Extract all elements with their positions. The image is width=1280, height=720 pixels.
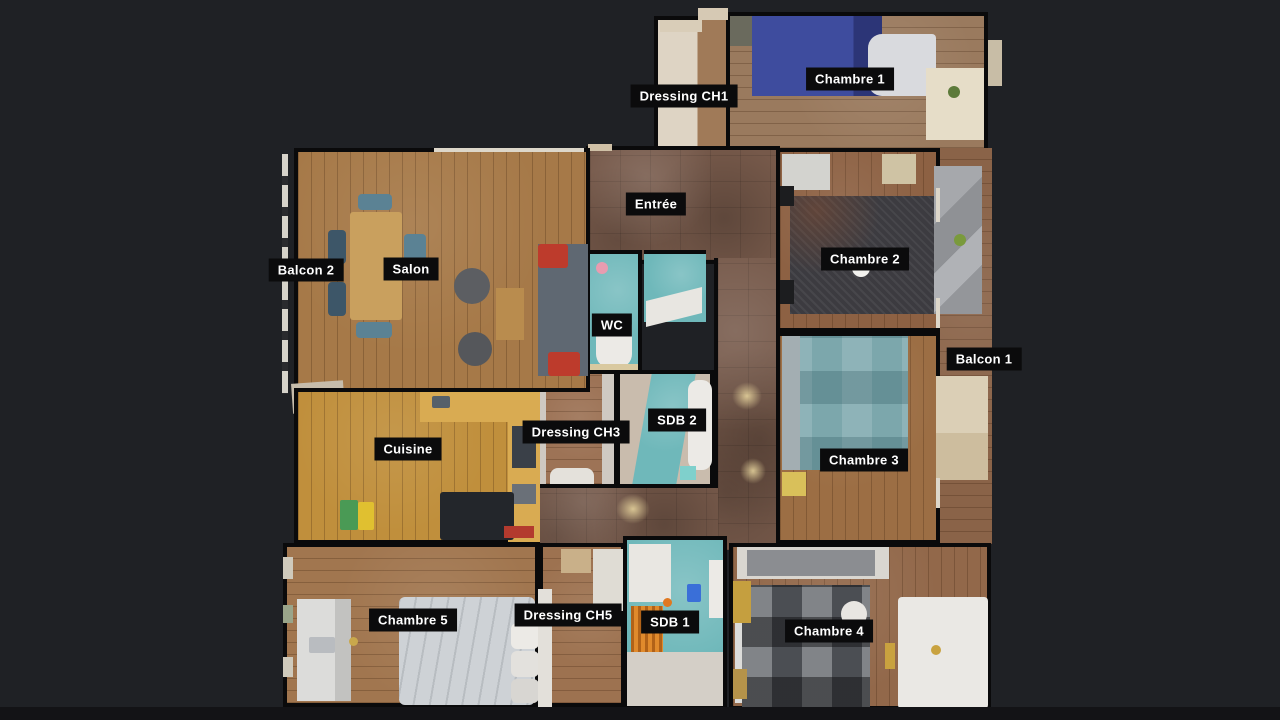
room-label-cuisine: Cuisine xyxy=(374,438,441,461)
chambre-4-desk xyxy=(898,597,988,709)
chambre-3-nightstand xyxy=(782,472,806,496)
chambre-4-bench xyxy=(747,550,875,576)
cuisine-bin-yellow xyxy=(358,502,374,530)
dressing-ch5-suitcase xyxy=(561,549,591,573)
cuisine-appliance xyxy=(512,484,536,504)
room-label-dressing-ch1: Dressing CH1 xyxy=(631,85,738,108)
salon-armchair xyxy=(454,268,490,304)
wall-fragment xyxy=(283,657,293,677)
room-label-chambre-3: Chambre 3 xyxy=(820,449,908,472)
sdb-1-vanity xyxy=(629,544,671,602)
room-label-chambre-5: Chambre 5 xyxy=(369,609,457,632)
sdb-1-floor-stone xyxy=(627,652,723,706)
cuisine-stove xyxy=(440,492,514,540)
chambre-1-desk xyxy=(926,68,984,140)
chambre-5-pillow xyxy=(511,651,539,677)
shower-vanity xyxy=(646,287,702,327)
chambre-5-pillow xyxy=(511,623,539,649)
dressing-ch1-shelf xyxy=(660,20,702,32)
room-label-entree: Entrée xyxy=(626,193,686,216)
floor-mark xyxy=(616,494,650,524)
room-cuisine xyxy=(294,388,540,544)
door-threshold xyxy=(588,144,612,151)
sdb-2-fixture xyxy=(680,466,696,480)
letterbox-bar xyxy=(0,707,1280,720)
chambre-2-closet xyxy=(782,154,830,190)
room-label-chambre-4: Chambre 4 xyxy=(785,620,873,643)
room-label-chambre-2: Chambre 2 xyxy=(821,248,909,271)
sdb-1-towel xyxy=(709,560,723,618)
wall-fragment xyxy=(698,8,728,20)
room-label-wc: WC xyxy=(592,314,632,337)
chambre-2-nightstand xyxy=(780,280,794,304)
chambre-3-pillows xyxy=(782,336,800,470)
dressing-ch3-item xyxy=(550,468,594,484)
room-label-balcon-2: Balcon 2 xyxy=(269,259,344,282)
salon-sofa-cushion xyxy=(548,352,580,376)
sdb-1-item-blue xyxy=(687,584,701,602)
floorplan-3d-view[interactable]: Dressing CH1 Chambre 1 Entrée Balcon 2 S… xyxy=(0,0,1280,720)
room-label-sdb-2: SDB 2 xyxy=(648,409,706,432)
window-segment xyxy=(936,298,940,328)
wall-fragment xyxy=(988,40,1002,86)
room-chambre-2 xyxy=(776,148,940,332)
chambre-4-candlestick xyxy=(931,645,941,655)
sdb-1-item-orange xyxy=(663,598,672,607)
balcon-1-plant xyxy=(954,234,966,246)
salon-chair xyxy=(356,322,392,338)
dressing-ch5-wardrobe xyxy=(593,549,623,611)
chambre-5-pillow xyxy=(511,679,539,703)
room-balcon-1 xyxy=(936,148,992,544)
cuisine-sink xyxy=(432,396,450,408)
cuisine-bin-green xyxy=(340,500,358,530)
chambre-5-laptop xyxy=(309,637,335,653)
wall-fragment xyxy=(283,557,293,579)
chambre-2-nightstand xyxy=(780,186,794,206)
floor-mark xyxy=(732,382,762,410)
wall-fragment xyxy=(283,605,293,623)
cuisine-item-red xyxy=(504,526,534,538)
chambre-2-wardrobe xyxy=(882,154,916,184)
room-label-sdb-1: SDB 1 xyxy=(641,611,699,634)
chambre-1-plant xyxy=(948,86,960,98)
room-label-salon: Salon xyxy=(384,258,439,281)
salon-sofa-cushion xyxy=(538,244,568,268)
window-segment xyxy=(936,188,940,222)
chambre-4-headboard-gold xyxy=(733,669,747,699)
room-label-dressing-ch5: Dressing CH5 xyxy=(515,604,622,627)
room-label-dressing-ch3: Dressing CH3 xyxy=(523,421,630,444)
salon-armchair xyxy=(458,332,492,366)
chambre-5-lamp xyxy=(349,637,358,646)
salon-chair xyxy=(328,282,346,316)
window-segment xyxy=(936,478,940,508)
room-label-chambre-1: Chambre 1 xyxy=(806,68,894,91)
salon-chair xyxy=(358,194,392,210)
wall-segment xyxy=(434,148,584,152)
chambre-4-lamp xyxy=(885,643,895,669)
salon-coffee-table xyxy=(496,288,524,340)
room-label-balcon-1: Balcon 1 xyxy=(947,348,1022,371)
floor-mark xyxy=(740,458,766,484)
room-chambre-3 xyxy=(776,332,940,544)
shower-nook xyxy=(644,250,706,322)
chambre-4-headboard-gold xyxy=(733,581,751,623)
floorplan-viewer: Dressing CH1 Chambre 1 Entrée Balcon 2 S… xyxy=(0,0,1280,720)
wc-flowers xyxy=(596,262,608,274)
balcon-1-furniture xyxy=(936,376,988,480)
